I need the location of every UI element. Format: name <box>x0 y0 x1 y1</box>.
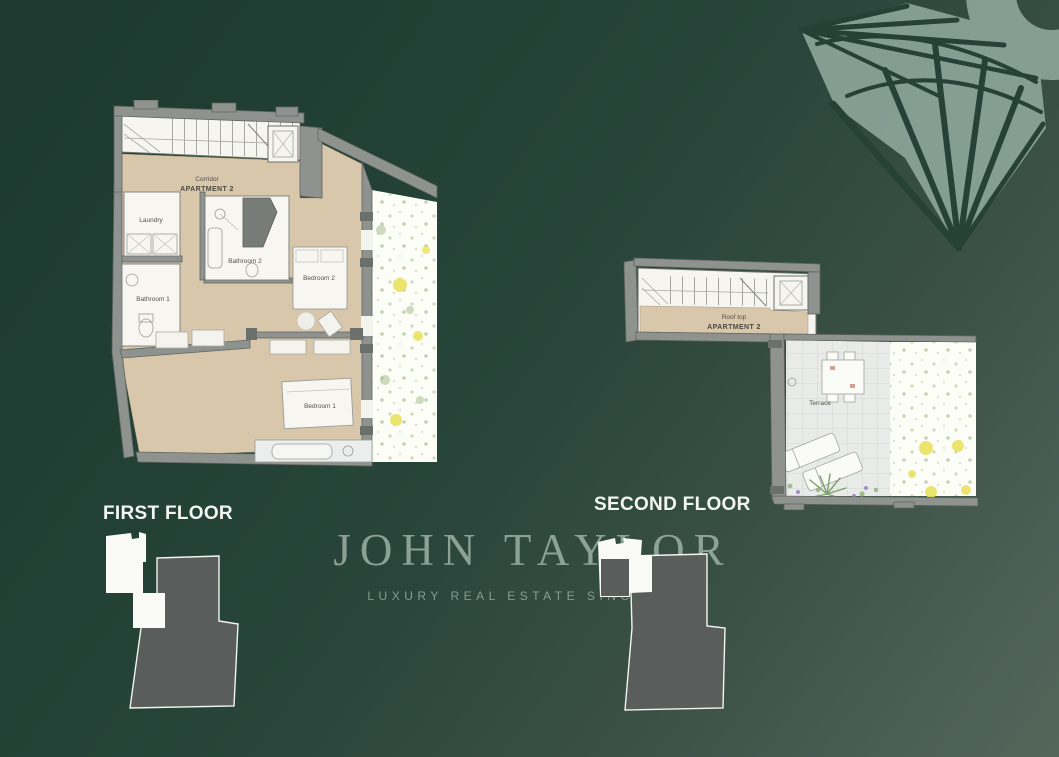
balcony <box>255 440 372 462</box>
bathroom-1-label: Bathroom 1 <box>136 296 170 303</box>
table-setting <box>850 384 855 388</box>
corridor-label: Corridor <box>195 176 219 183</box>
roof-top-label: Roof top <box>722 314 747 321</box>
elevator <box>268 126 298 162</box>
laundry-label: Laundry <box>139 217 163 224</box>
elevator <box>774 276 808 310</box>
wall-jamb <box>770 486 784 494</box>
terrace-label: Terrace <box>809 400 831 407</box>
bedroom-1-label: Bedroom 1 <box>304 403 336 410</box>
apartment-label-first: APARTMENT 2 <box>180 186 234 193</box>
fan-ornament-icon <box>789 0 1059 258</box>
terrace-block: Terrace <box>768 334 978 510</box>
brochure-page: JOHN TAYLOR LUXURY REAL ESTATE SINCE 186… <box>0 0 1059 757</box>
garden-strip <box>372 190 437 462</box>
first-floor-keyplan <box>100 528 240 713</box>
apartment-label-second: APARTMENT 2 <box>707 324 761 331</box>
building-footprint <box>130 556 238 708</box>
first-floor-plan: Laundry Bathroom 1 Bathroom 2 Corridor A… <box>100 100 440 468</box>
laundry-room: Laundry <box>124 192 180 256</box>
bedroom-2-label: Bedroom 2 <box>303 275 335 282</box>
rooftop-block: Roof top APARTMENT 2 <box>624 258 820 342</box>
apartment-highlight <box>106 532 165 628</box>
second-floor-plan: Roof top APARTMENT 2 <box>622 248 978 510</box>
bedroom-1: Bedroom 1 <box>282 378 353 429</box>
bathroom-2: Bathroom 2 <box>205 196 289 280</box>
second-floor-title: SECOND FLOOR <box>594 494 751 516</box>
wall-jamb <box>768 340 782 348</box>
rooftop-footprint <box>601 559 629 596</box>
table-setting <box>830 366 835 370</box>
bathroom-2-label: Bathroom 2 <box>228 258 262 265</box>
first-floor-title: FIRST FLOOR <box>103 503 233 525</box>
second-floor-keyplan <box>594 534 734 719</box>
bedroom-2: Bedroom 2 <box>293 247 347 337</box>
